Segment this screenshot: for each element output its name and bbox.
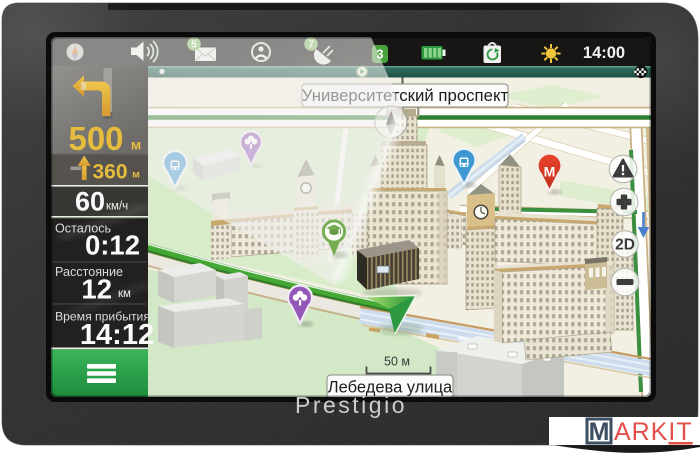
svg-text:M: M xyxy=(544,164,556,180)
svg-text:360: 360 xyxy=(92,161,127,184)
svg-text:14:00: 14:00 xyxy=(583,44,625,62)
svg-text:500: 500 xyxy=(68,120,123,157)
svg-text:60: 60 xyxy=(75,187,105,217)
svg-text:50 м: 50 м xyxy=(384,355,410,369)
svg-text:м: м xyxy=(131,137,141,153)
svg-text:14:12: 14:12 xyxy=(80,319,154,351)
svg-text:ARKIT: ARKIT xyxy=(614,418,693,446)
svg-text:2D: 2D xyxy=(615,237,635,254)
svg-text:м: м xyxy=(132,169,140,181)
svg-text:Prestigio: Prestigio xyxy=(295,392,407,418)
svg-text:M: M xyxy=(589,418,610,446)
svg-text:0:12: 0:12 xyxy=(85,230,140,261)
